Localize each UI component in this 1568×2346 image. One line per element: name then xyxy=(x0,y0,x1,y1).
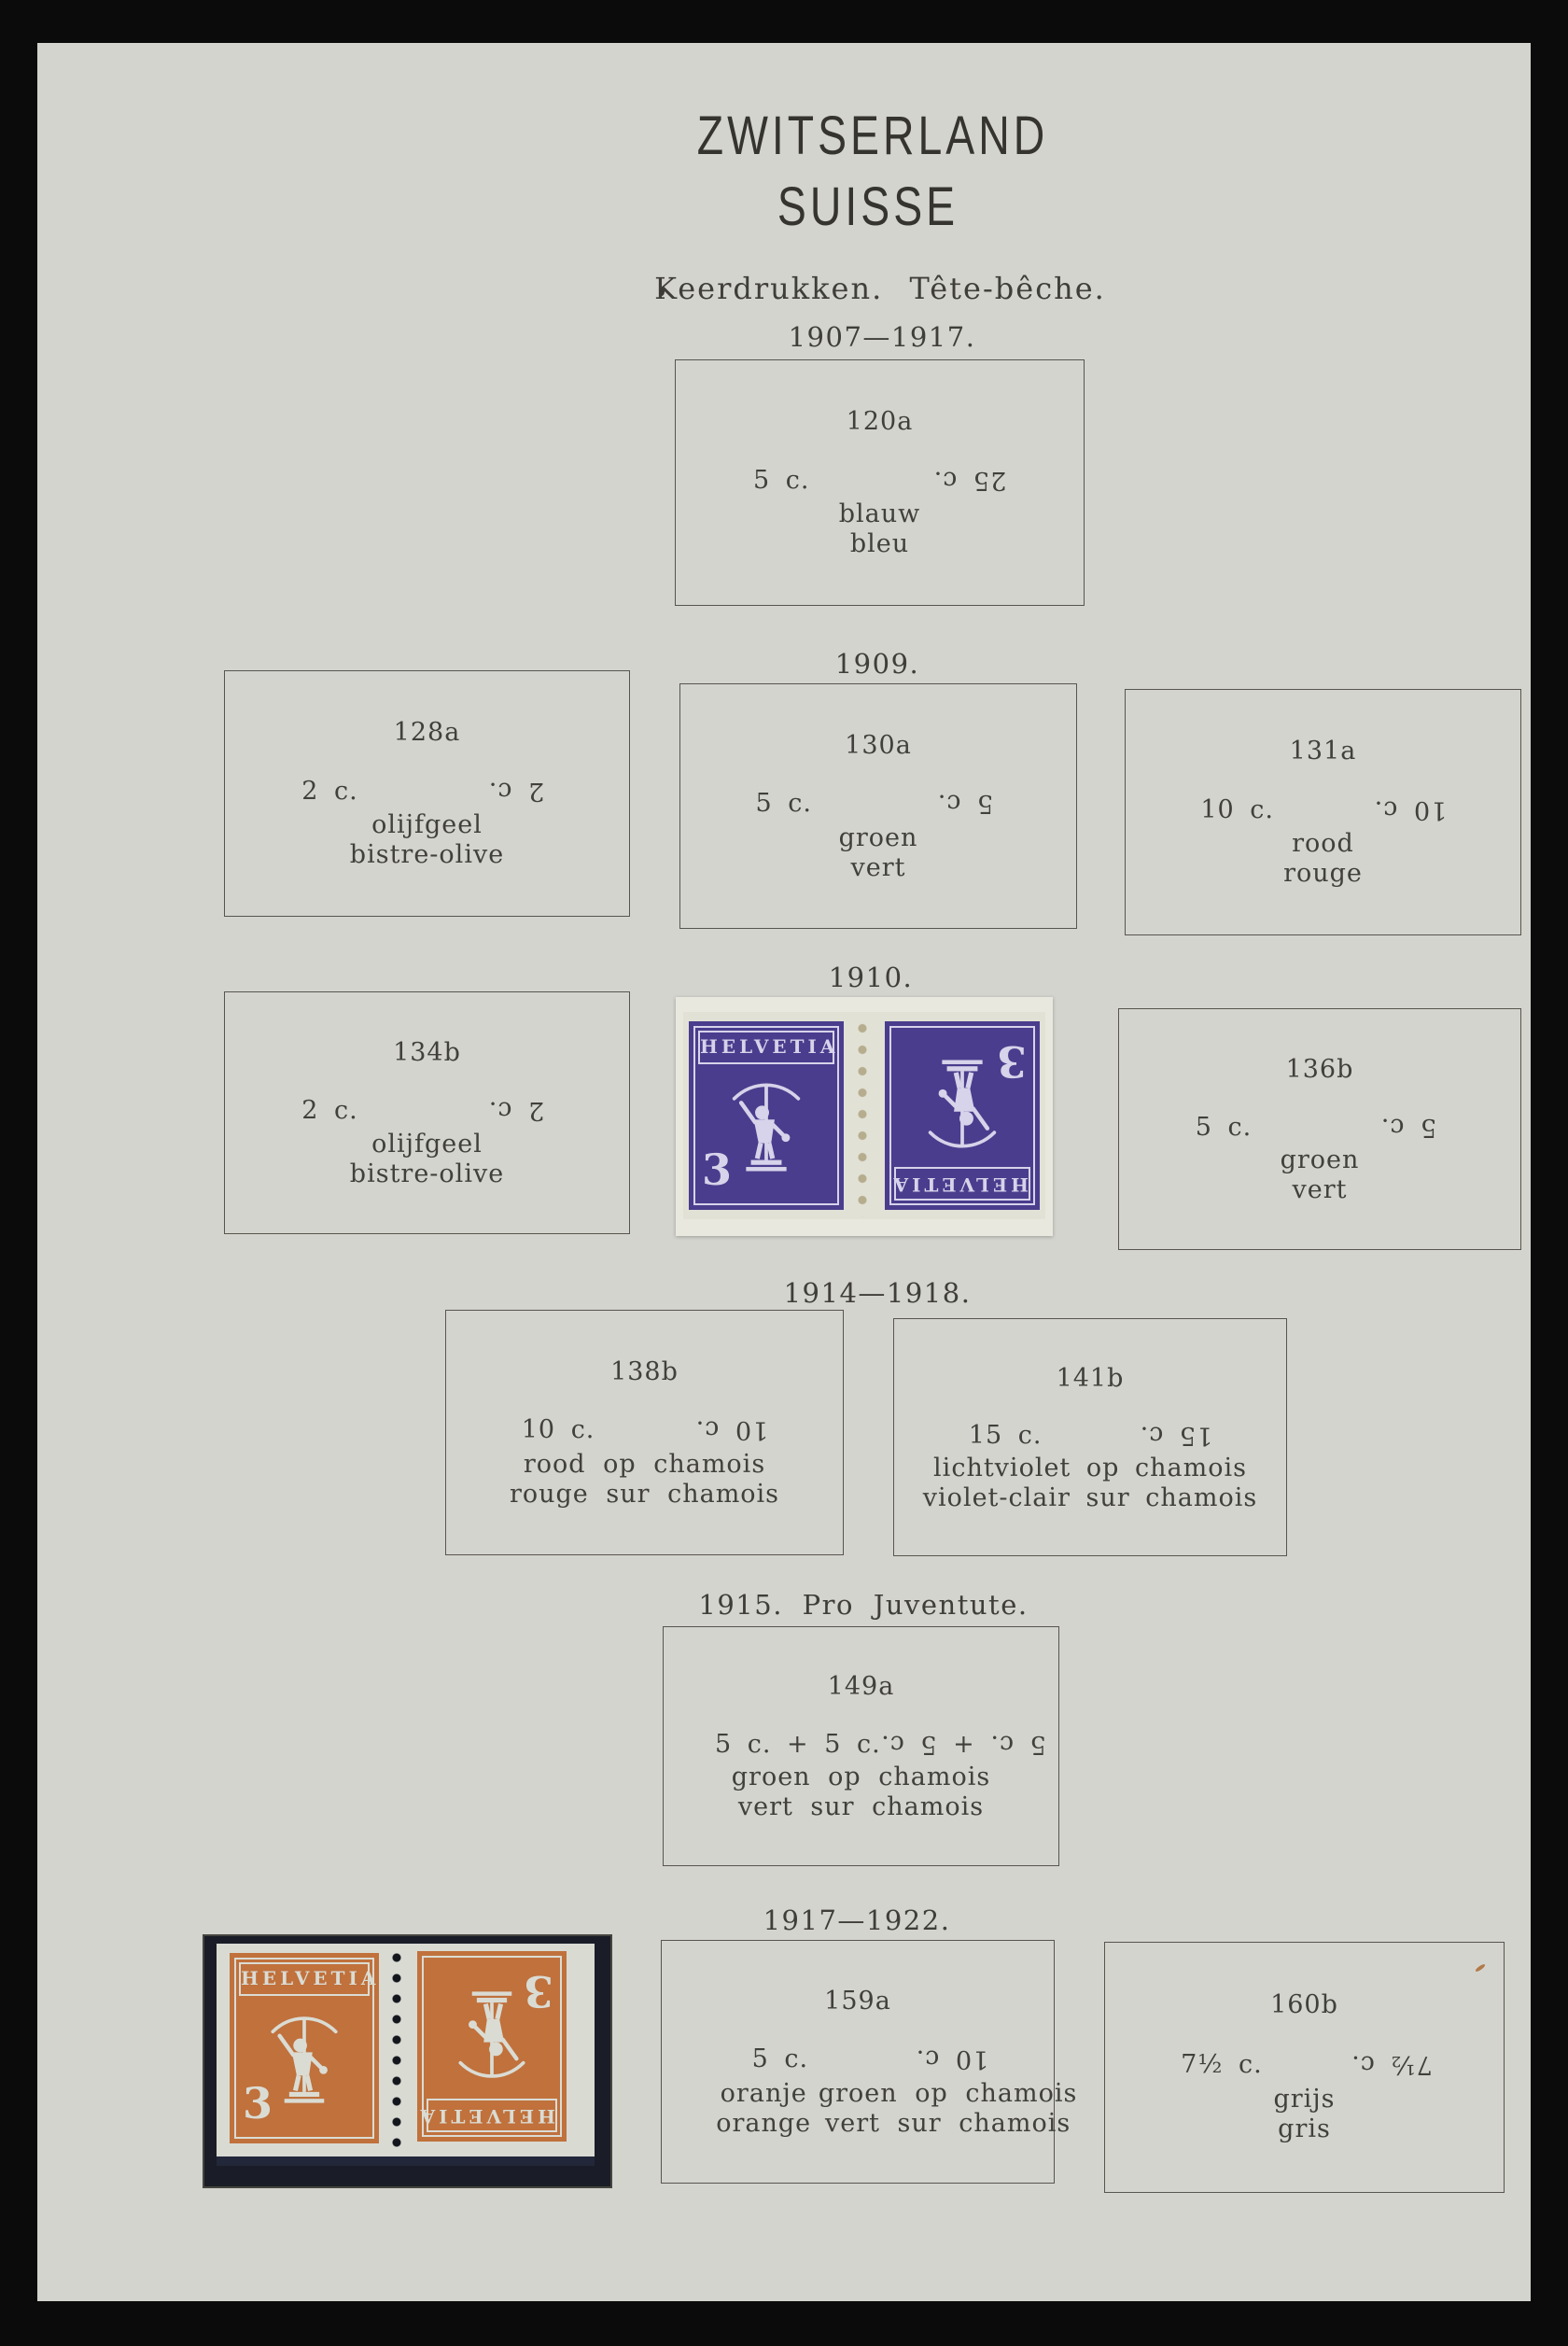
denomination-right-inverted: 25 c. xyxy=(932,466,1006,495)
color-dutch: groen xyxy=(1119,1145,1520,1175)
color-names: rood rouge xyxy=(1126,829,1520,889)
color-dutch: olijfgeel xyxy=(225,810,629,840)
period-label-1907-1917: 1907—1917. xyxy=(789,321,976,353)
stamp-denomination: 3 xyxy=(524,1966,553,2016)
denomination-left: 5 c. + 5 c. xyxy=(715,1730,881,1759)
stamp-upright-orange: HELVETIA 3 xyxy=(230,1953,379,2143)
catalogue-box-141b: 141b 15 c. 15 c. lichtviolet op chamois … xyxy=(893,1318,1287,1556)
period-label-1914-1918: 1914—1918. xyxy=(784,1277,972,1309)
color-french: bleu xyxy=(676,529,1084,559)
color-names: groen vert xyxy=(1119,1145,1520,1205)
denomination-right-inverted: 10 c. xyxy=(915,2044,988,2073)
catalogue-number: 149a xyxy=(664,1672,1058,1701)
catalogue-box-159a: 159a 5 c. 10 c. oranje orange groen op c… xyxy=(661,1940,1055,2184)
stamp-denomination: 3 xyxy=(243,2078,273,2128)
color-french: vert xyxy=(1119,1175,1520,1205)
perforation-dots xyxy=(385,1944,409,2156)
color-french: bistre-olive xyxy=(225,840,629,870)
period-label-1917-1922: 1917—1922. xyxy=(763,1904,951,1936)
orange-tete-beche-pair-mount: HELVETIA 3 HELVETIA xyxy=(203,1934,612,2188)
color-french: orange xyxy=(716,2109,811,2139)
color-names: blauw bleu xyxy=(676,499,1084,559)
crossbow-boy-figure xyxy=(720,1071,813,1175)
denomination-right-inverted: 5 c. + 5 c. xyxy=(881,1730,1047,1759)
denomination-right-inverted: 15 c. xyxy=(1140,1421,1213,1450)
stamp-country-label: HELVETIA xyxy=(239,1962,370,1996)
color-names-right: groen op chamois vert sur chamois xyxy=(819,2079,1077,2139)
color-french: vert sur chamois xyxy=(664,1792,1058,1822)
period-label-1910: 1910. xyxy=(829,962,914,993)
denomination-left: 5 c. xyxy=(756,789,812,818)
color-names: lichtviolet op chamois violet-clair sur … xyxy=(894,1454,1286,1513)
paper-speck xyxy=(1475,1963,1486,1973)
catalogue-box-128a: 128a 2 c. 2 c. olijfgeel bistre-olive xyxy=(224,670,630,917)
color-dutch: grijs xyxy=(1105,2085,1504,2114)
color-french: gris xyxy=(1105,2114,1504,2144)
color-names: olijfgeel bistre-olive xyxy=(225,1130,629,1189)
denomination-left: 2 c. xyxy=(301,1096,357,1125)
catalogue-number: 160b xyxy=(1105,1990,1504,2019)
color-dutch: oranje xyxy=(716,2079,811,2109)
denomination-left: 7½ c. xyxy=(1181,2050,1263,2079)
catalogue-number: 120a xyxy=(676,407,1084,436)
stamp-denomination: 3 xyxy=(997,1036,1027,1087)
denomination-left: 5 c. xyxy=(1196,1113,1252,1142)
country-title-dutch: ZWITSERLAND xyxy=(697,105,1049,167)
catalogue-number: 136b xyxy=(1119,1055,1520,1084)
catalogue-number: 128a xyxy=(225,718,629,747)
color-dutch: olijfgeel xyxy=(225,1130,629,1159)
catalogue-box-136b: 136b 5 c. 5 c. groen vert xyxy=(1118,1008,1521,1250)
color-french: vert sur chamois xyxy=(819,2109,1077,2139)
denomination-right-inverted: 2 c. xyxy=(488,1096,544,1125)
denomination-right-inverted: 5 c. xyxy=(1379,1113,1435,1142)
catalogue-number: 141b xyxy=(894,1364,1286,1393)
stamp-country-label: HELVETIA xyxy=(894,1167,1030,1201)
color-french: rouge sur chamois xyxy=(446,1480,843,1510)
denomination-right-inverted: 2 c. xyxy=(488,777,544,806)
period-label-1915-pro-juventute: 1915. Pro Juventute. xyxy=(698,1589,1028,1621)
catalogue-number: 134b xyxy=(225,1038,629,1067)
catalogue-box-130a: 130a 5 c. 5 c. groen vert xyxy=(679,683,1077,929)
catalogue-number: 130a xyxy=(680,731,1076,760)
color-names: groen op chamois vert sur chamois xyxy=(664,1763,1058,1822)
crossbow-boy-figure xyxy=(916,1056,1009,1160)
catalogue-number: 159a xyxy=(662,1987,1054,2016)
color-french: vert xyxy=(680,853,1076,883)
color-names: olijfgeel bistre-olive xyxy=(225,810,629,870)
album-page: ZWITSERLAND SUISSE Keerdrukken. Tête-bêc… xyxy=(37,43,1531,2301)
perforation-dots xyxy=(849,1014,875,1217)
denomination-left: 5 c. xyxy=(752,2044,808,2073)
denomination-left: 15 c. xyxy=(969,1421,1043,1450)
denomination-left: 2 c. xyxy=(301,777,357,806)
color-dutch: groen op chamois xyxy=(819,2079,1077,2109)
color-dutch: blauw xyxy=(676,499,1084,529)
mount-shadow xyxy=(217,2156,595,2166)
stamp-upright-violet: HELVETIA 3 xyxy=(689,1021,844,1210)
catalogue-box-134b: 134b 2 c. 2 c. olijfgeel bistre-olive xyxy=(224,991,630,1234)
denomination-right-inverted: 10 c. xyxy=(695,1415,769,1444)
stamp-inverted-orange: HELVETIA 3 xyxy=(417,1951,567,2142)
stamp-country-label: HELVETIA xyxy=(427,2099,557,2132)
catalogue-box-138b: 138b 10 c. 10 c. rood op chamois rouge s… xyxy=(445,1310,844,1555)
color-dutch: groen op chamois xyxy=(664,1763,1058,1792)
ink-speck xyxy=(659,288,665,296)
denomination-right-inverted: 5 c. xyxy=(937,789,993,818)
section-heading: Keerdrukken. Tête-bêche. xyxy=(654,271,1106,306)
denomination-right-inverted: 10 c. xyxy=(1373,795,1447,824)
color-names: groen vert xyxy=(680,823,1076,883)
color-dutch: rood op chamois xyxy=(446,1450,843,1480)
color-names-left: oranje orange xyxy=(716,2079,811,2139)
color-french: violet-clair sur chamois xyxy=(894,1483,1286,1513)
catalogue-box-120a: 120a 5 c. 25 c. blauw bleu xyxy=(675,359,1085,606)
catalogue-box-160b: 160b 7½ c. 7½ c. grijs gris xyxy=(1104,1942,1505,2193)
stamp-denomination: 3 xyxy=(702,1145,732,1195)
color-names: grijs gris xyxy=(1105,2085,1504,2144)
catalogue-box-149a: 149a 5 c. + 5 c. 5 c. + 5 c. groen op ch… xyxy=(663,1626,1059,1866)
country-title-french: SUISSE xyxy=(777,176,959,238)
period-label-1909: 1909. xyxy=(835,648,920,680)
color-names: rood op chamois rouge sur chamois xyxy=(446,1450,843,1510)
color-french: bistre-olive xyxy=(225,1159,629,1189)
denomination-left: 10 c. xyxy=(522,1415,595,1444)
photographed-album-page: ZWITSERLAND SUISSE Keerdrukken. Tête-bêc… xyxy=(0,0,1568,2346)
color-french: rouge xyxy=(1126,859,1520,889)
stamp-inverted-violet: HELVETIA 3 xyxy=(885,1021,1040,1210)
color-dutch: groen xyxy=(680,823,1076,853)
color-dutch: rood xyxy=(1126,829,1520,859)
denomination-left: 10 c. xyxy=(1200,795,1274,824)
color-dutch: lichtviolet op chamois xyxy=(894,1454,1286,1483)
stamp-country-label: HELVETIA xyxy=(698,1031,834,1064)
catalogue-number: 138b xyxy=(446,1357,843,1386)
denomination-right-inverted: 7½ c. xyxy=(1351,2050,1434,2079)
violet-tete-beche-pair: HELVETIA 3 HELVETIA xyxy=(676,997,1053,1236)
catalogue-number: 131a xyxy=(1126,737,1520,766)
catalogue-box-131a: 131a 10 c. 10 c. rood rouge xyxy=(1125,689,1521,935)
denomination-left: 5 c. xyxy=(753,466,809,495)
